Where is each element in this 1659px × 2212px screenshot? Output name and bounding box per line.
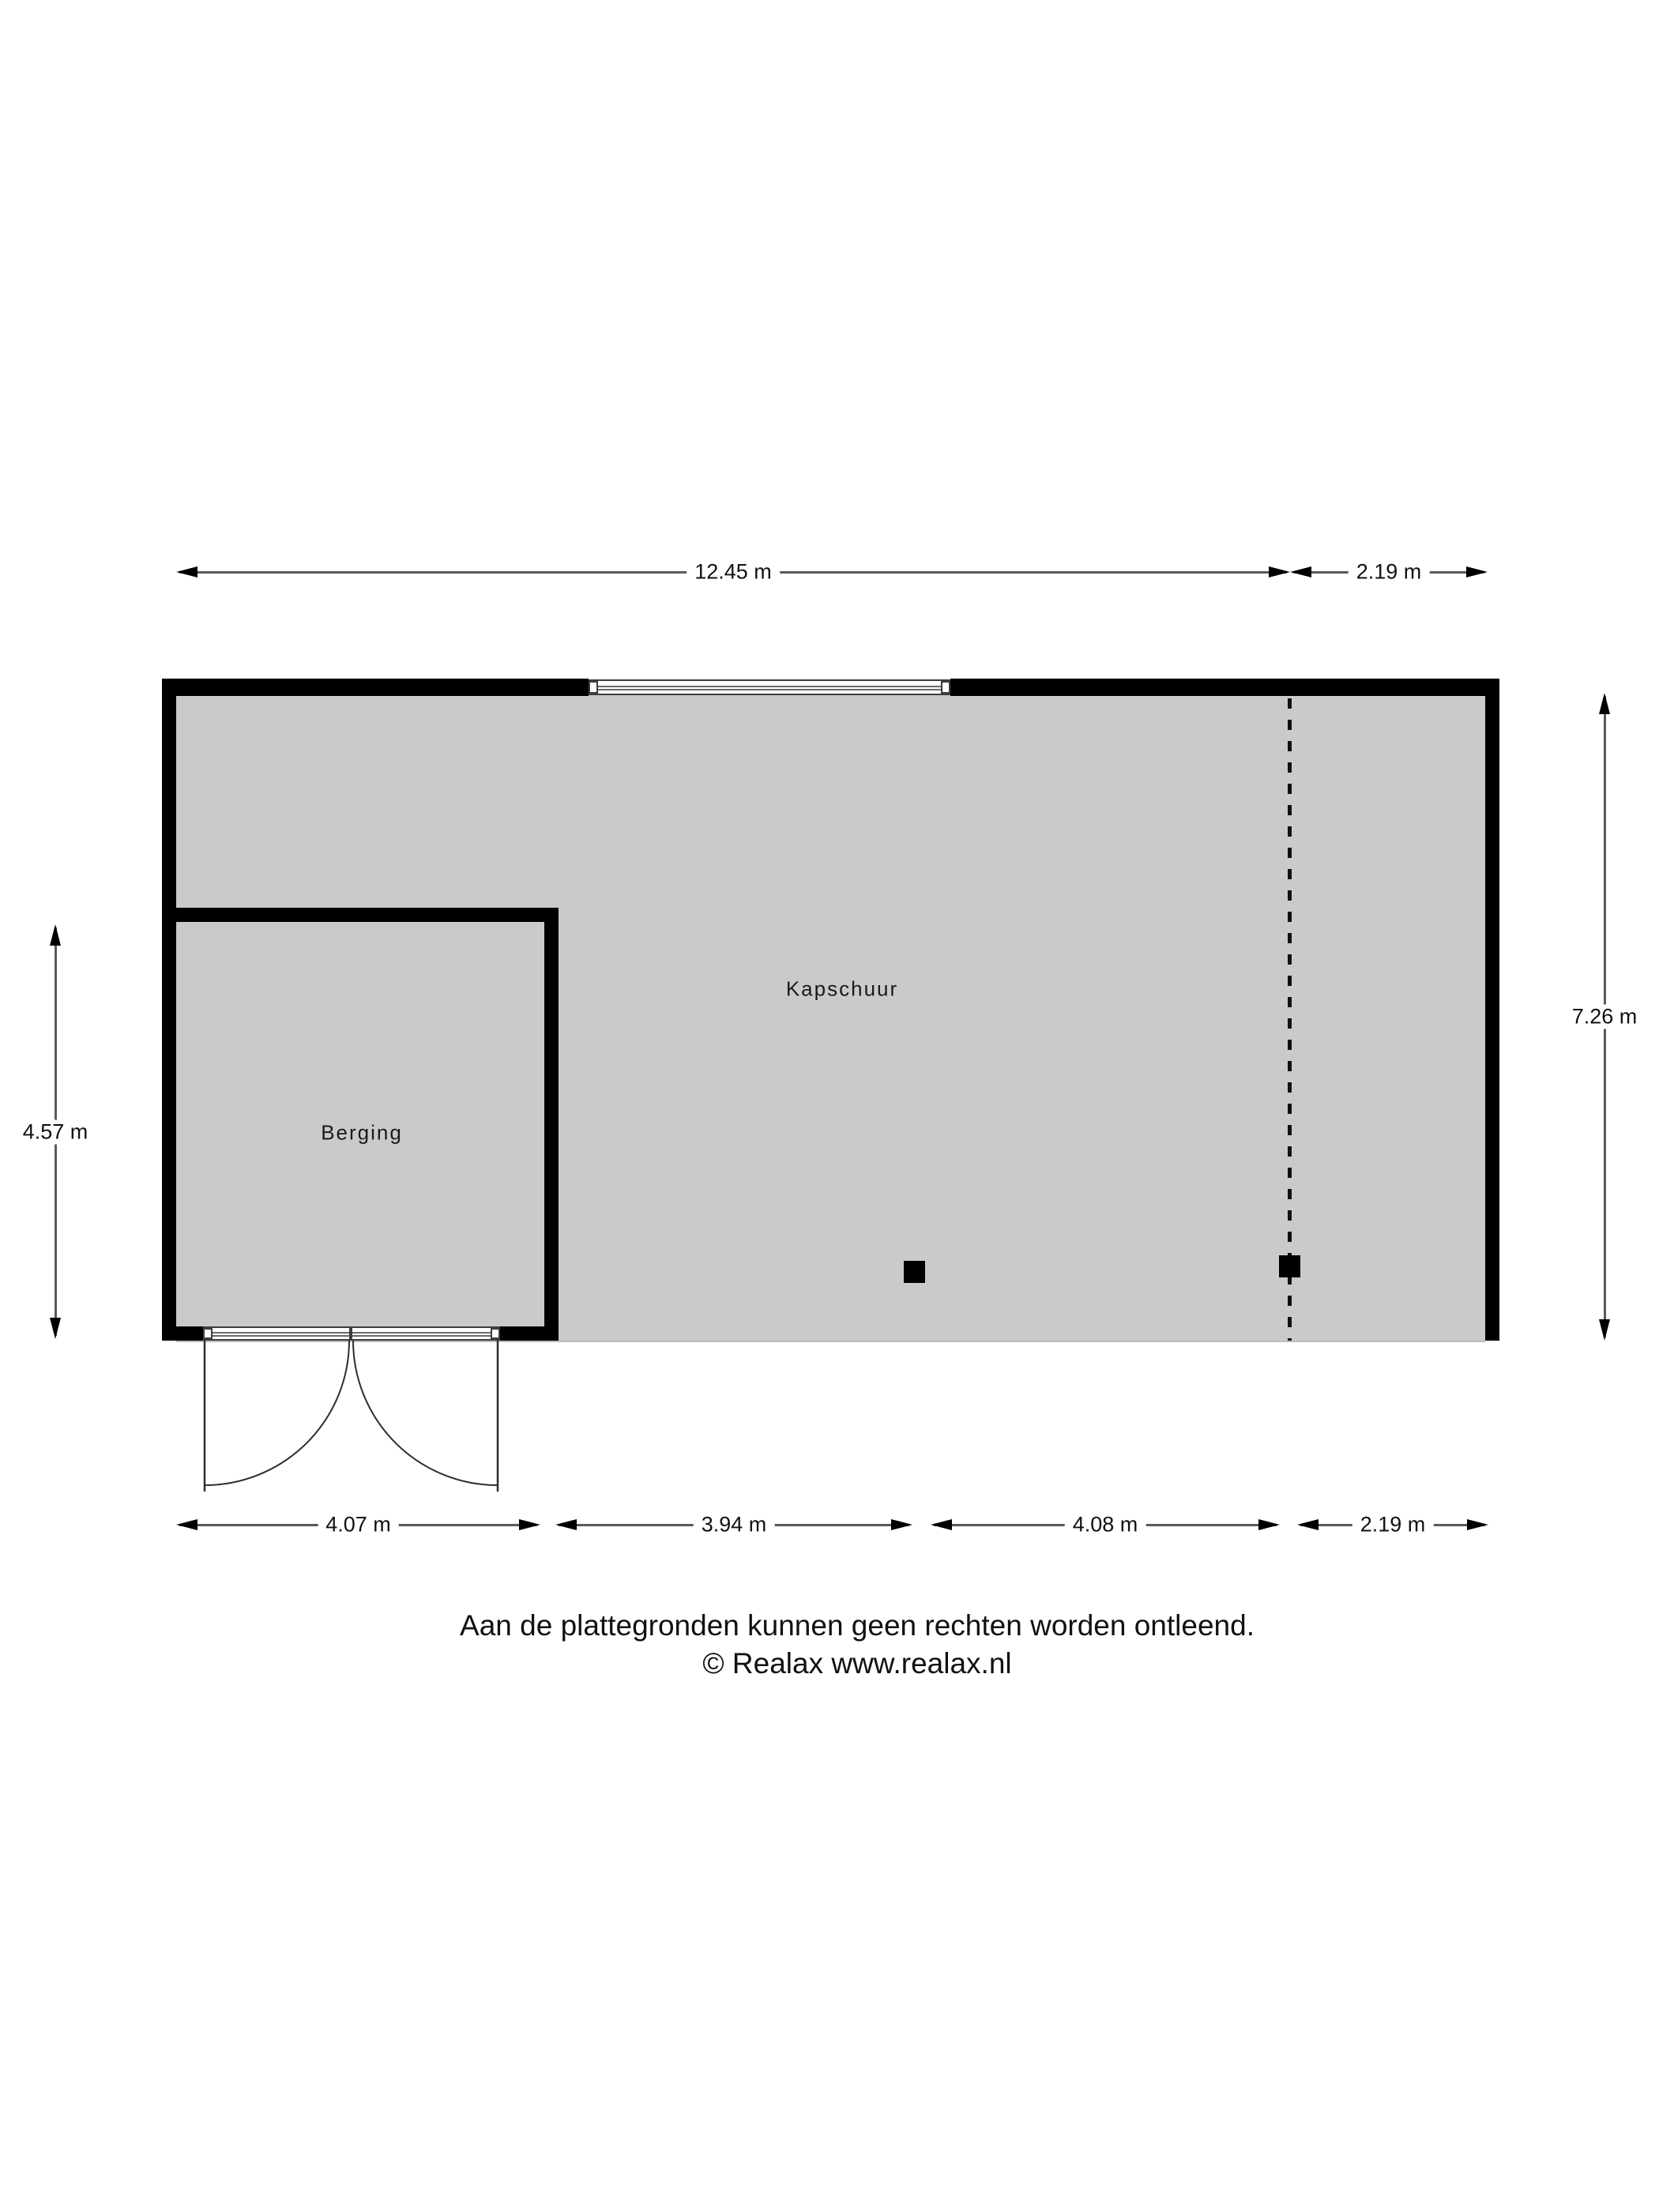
- arrowhead-right-icon: [1467, 1519, 1488, 1530]
- door-left-swing-arc: [205, 1341, 349, 1485]
- wall-top-right: [950, 679, 1499, 696]
- dim-right-7-26: 7.26 m: [1593, 693, 1616, 1341]
- room-label-berging: Berging: [321, 1121, 403, 1145]
- arrowhead-left-icon: [176, 566, 197, 577]
- window-end-cap: [941, 681, 950, 694]
- disclaimer-text: Aan de plattegronden kunnen geen rechten…: [55, 1607, 1659, 1645]
- sill-line: [205, 1332, 349, 1334]
- support-post-2: [1279, 1255, 1300, 1277]
- support-post-1: [904, 1261, 925, 1283]
- sill-line: [352, 1332, 498, 1334]
- arrowhead-left-icon: [176, 1519, 197, 1530]
- dim-left-4-57: 4.57 m: [44, 924, 66, 1339]
- dimension-label: 4.08 m: [1065, 1513, 1146, 1537]
- double-door-symbol: [182, 1335, 513, 1501]
- arrowhead-down-icon: [50, 1318, 61, 1339]
- dim-top-2-19: 2.19 m: [1290, 561, 1488, 583]
- window: [589, 679, 950, 695]
- wall-right: [1485, 679, 1499, 1341]
- dimension-label: 2.19 m: [1352, 1513, 1434, 1537]
- wall-left: [162, 679, 176, 1341]
- dim-bottom-4-08: 4.08 m: [931, 1514, 1280, 1536]
- dimension-label: 12.45 m: [687, 560, 780, 585]
- window-end-cap: [589, 681, 598, 694]
- window-pane-line: [590, 686, 949, 687]
- door-right-swing-arc: [353, 1341, 498, 1485]
- arrowhead-left-icon: [931, 1519, 952, 1530]
- wall-top-left: [162, 679, 589, 696]
- arrowhead-up-icon: [50, 924, 61, 946]
- dim-bottom-3-94: 3.94 m: [555, 1514, 912, 1536]
- dimension-label: 4.07 m: [318, 1513, 399, 1537]
- copyright-text: © Realax www.realax.nl: [55, 1645, 1659, 1683]
- arrowhead-down-icon: [1599, 1319, 1610, 1341]
- dim-bottom-2-19: 2.19 m: [1297, 1514, 1488, 1536]
- window-pane-line: [590, 689, 949, 690]
- arrowhead-right-icon: [891, 1519, 912, 1530]
- dim-bottom-4-07: 4.07 m: [176, 1514, 540, 1536]
- arrowhead-up-icon: [1599, 693, 1610, 714]
- floorplan-page: 12.45 m 2.19 m: [0, 0, 1659, 2212]
- dimension-label: 4.57 m: [15, 1119, 96, 1144]
- arrowhead-right-icon: [1466, 566, 1488, 577]
- berging-wall-right: [544, 908, 559, 1341]
- dim-top-12-45: 12.45 m: [176, 561, 1290, 583]
- arrowhead-right-icon: [519, 1519, 540, 1530]
- overhang-separation-dashed-line: [1288, 698, 1292, 1341]
- arrowhead-left-icon: [1297, 1519, 1319, 1530]
- room-label-kapschuur: Kapschuur: [786, 977, 898, 1002]
- arrowhead-right-icon: [1269, 566, 1290, 577]
- arrowhead-left-icon: [555, 1519, 577, 1530]
- dimension-label: 2.19 m: [1349, 560, 1430, 585]
- arrowhead-left-icon: [1290, 566, 1311, 577]
- dimension-label: 7.26 m: [1564, 1005, 1646, 1029]
- arrowhead-right-icon: [1258, 1519, 1280, 1530]
- footer: Aan de plattegronden kunnen geen rechten…: [55, 1607, 1659, 1683]
- berging-wall-top: [162, 908, 559, 922]
- dimension-label: 3.94 m: [694, 1513, 775, 1537]
